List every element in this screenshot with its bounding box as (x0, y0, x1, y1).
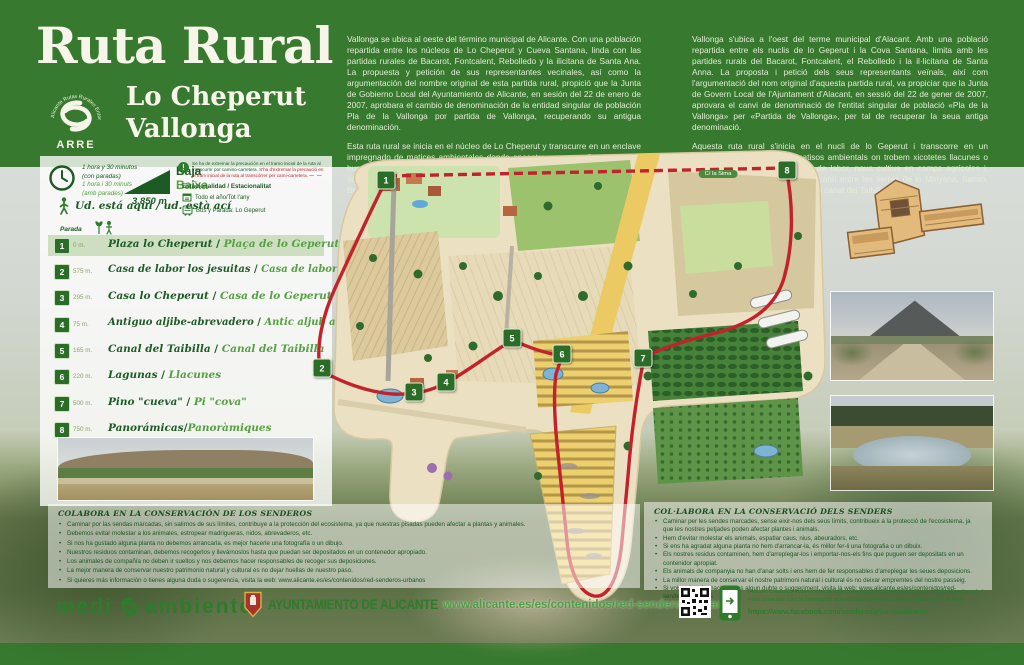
subtitle-line1: Lo Cheperut (126, 82, 306, 112)
stop-row: 5 165 m. Canal del Taibilla / Canal del … (40, 340, 332, 362)
stop-number-badge: 3 (54, 290, 70, 306)
map-marker-5: 5 (503, 329, 522, 348)
stop-number-badge: 1 (54, 238, 70, 254)
stop-number-badge: 8 (54, 422, 70, 438)
conservation-list-es: Caminar por las sendas marcadas, sin sal… (58, 520, 630, 585)
slope-triangle-icon (124, 170, 170, 194)
stop-distance: 575 m. (73, 268, 101, 275)
aljibe-illustration (842, 172, 994, 280)
you-are-here-text: Ud. está aquí / ud. està ací (75, 200, 231, 212)
stop-row: 3 295 m. Casa lo Cheperut / Casa de lo G… (40, 287, 332, 309)
stop-distance: 75 m. (73, 321, 101, 328)
stop-row: 4 75 m. Antiguo aljibe-abrevadero / Anti… (40, 314, 332, 336)
stop-distance: 500 m. (73, 400, 101, 407)
stop-name-es: Plaza lo Cheperut (108, 238, 212, 250)
medioambiente-logo: medi ambiente (56, 592, 253, 622)
route-info-panel: 1 hora y 30 minutos(con paradas) 1 hora … (40, 156, 332, 506)
footer-note: Puedes consultar toda la información act… (748, 588, 1000, 616)
map-marker-7: 7 (634, 349, 653, 368)
alicante-crest-icon (243, 591, 263, 618)
map-marker-3: 3 (405, 383, 424, 402)
you-are-here-icon (58, 197, 70, 215)
stop-row: 7 500 m. Pino "cueva" / Pi "cova" (40, 393, 332, 415)
page-title: Ruta Rural (36, 16, 332, 75)
stop-number-badge: 7 (54, 396, 70, 412)
stop-number-badge: 5 (54, 343, 70, 359)
stop-row: 6 220 m. Lagunas / Llacunes (40, 366, 332, 388)
stop-distance: 165 m. (73, 347, 101, 354)
qr-code (679, 586, 711, 618)
medio-swirl-icon (114, 592, 144, 622)
stop-number-badge: 2 (54, 264, 70, 280)
stop-distance: 0 m. (73, 242, 101, 249)
arre-arc-text: Alicante Rutas Rurales Entorno (44, 78, 102, 120)
stop-number-badge: 4 (54, 317, 70, 333)
medio-word1: medi (56, 595, 113, 619)
map-marker-1: 1 (377, 171, 396, 190)
arre-acronym: ARRE (56, 139, 95, 151)
laguna-photo (830, 395, 994, 491)
stop-distance: 750 m. (73, 426, 101, 433)
warning-icon: ! (178, 162, 189, 173)
stop-row: 1 0 m. Plaza lo Cheperut / Plaça de lo G… (40, 235, 332, 257)
panorama-photo (57, 437, 314, 501)
svg-text:Alicante Rutas Rurales Entorno: Alicante Rutas Rurales Entorno (44, 78, 102, 120)
seasonality-label: Estacionalidad / Estacionalitat (182, 183, 271, 190)
map-marker-6: 6 (553, 345, 572, 364)
facebook-url: https://www.facebook.com/senderosurbanos… (748, 607, 1000, 616)
conservation-section-va: COL·LABORA EN LA CONSERVACIÓ DELS SENDER… (644, 502, 992, 590)
road-photo (830, 291, 994, 381)
arre-logo: Alicante Rutas Rurales Entorno ARRE (44, 78, 108, 152)
ayuntamiento-label: AYUNTAMIENTO DE ALICANTE (268, 597, 438, 612)
stop-distance: 295 m. (73, 294, 101, 301)
subtitle-line2: Vallonga (126, 114, 252, 144)
conservation-section-es: COLABORA EN LA CONSERVACIÓN DE LOS SENDE… (48, 504, 640, 588)
map-marker-4: 4 (437, 373, 456, 392)
stop-number-badge: 6 (54, 369, 70, 385)
stop-row: 2 575 m. Casa de labor los jesuitas / Ca… (40, 261, 332, 283)
route-information-board: { "header": { "title": "Ruta Rural", "su… (0, 0, 1024, 643)
street-label: C/ la Sima (699, 170, 738, 178)
map-marker-8: 8 (778, 161, 797, 180)
stop-icons (94, 220, 116, 235)
stops-label: Parada (60, 226, 82, 233)
medio-word2: ambiente (145, 595, 253, 619)
clock-icon (48, 164, 76, 192)
footer-note-va: Pots consultar tota la informació actual… (748, 596, 1000, 604)
footer-note-es: Puedes consultar toda la información act… (748, 588, 1000, 596)
map-marker-2: 2 (313, 359, 332, 378)
conservation-title-va: COL·LABORA EN LA CONSERVACIÓ DELS SENDER… (654, 507, 982, 516)
mobile-phone-icon (718, 584, 742, 622)
conservation-title-es: COLABORA EN LA CONSERVACIÓN DE LOS SENDE… (58, 509, 630, 518)
stop-distance: 220 m. (73, 373, 101, 380)
